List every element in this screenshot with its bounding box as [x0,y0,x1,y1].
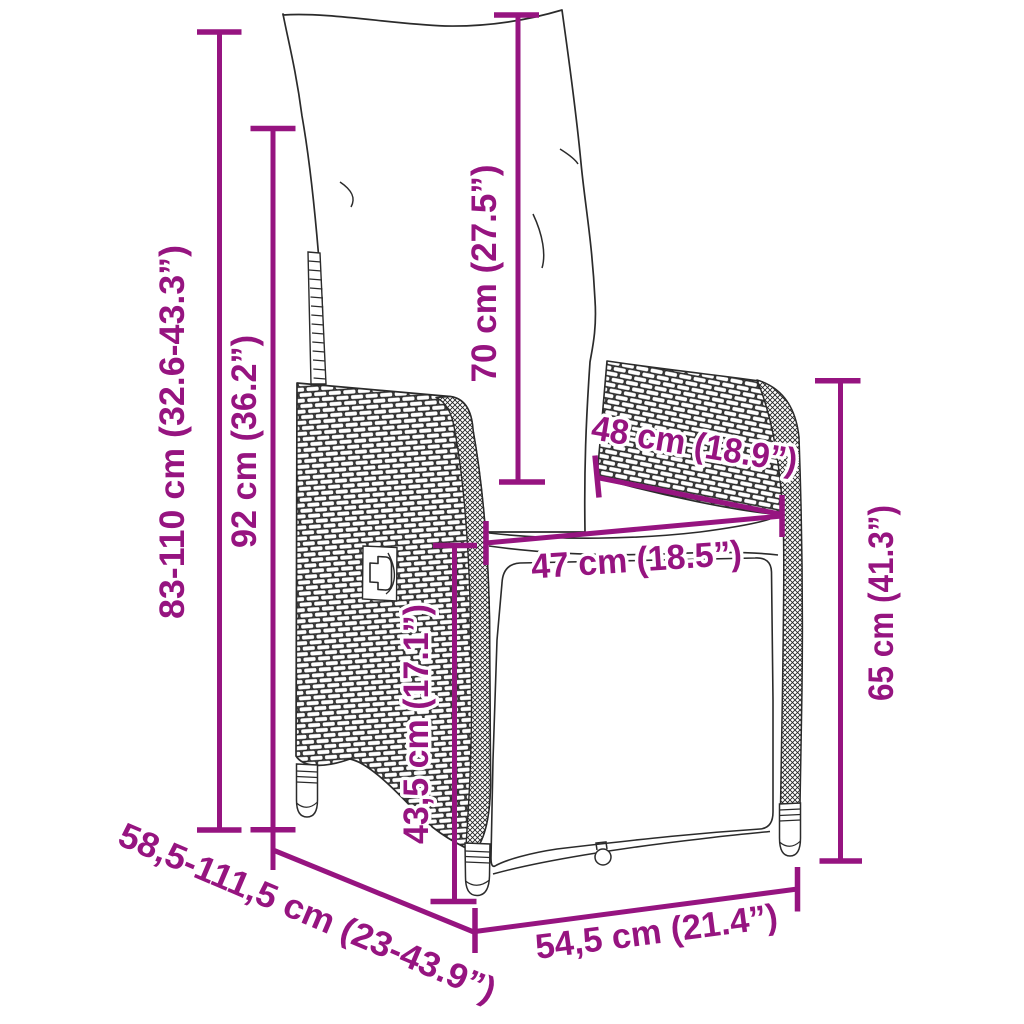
svg-text:43,5 cm (17.1”): 43,5 cm (17.1”) [397,604,436,844]
svg-text:70 cm (27.5”): 70 cm (27.5”) [465,165,504,383]
svg-text:92 cm (36.2”): 92 cm (36.2”) [225,335,264,548]
svg-text:65 cm (41.3”): 65 cm (41.3”) [862,505,901,701]
svg-text:83-110 cm (32.6-43.3”): 83-110 cm (32.6-43.3”) [153,245,192,619]
